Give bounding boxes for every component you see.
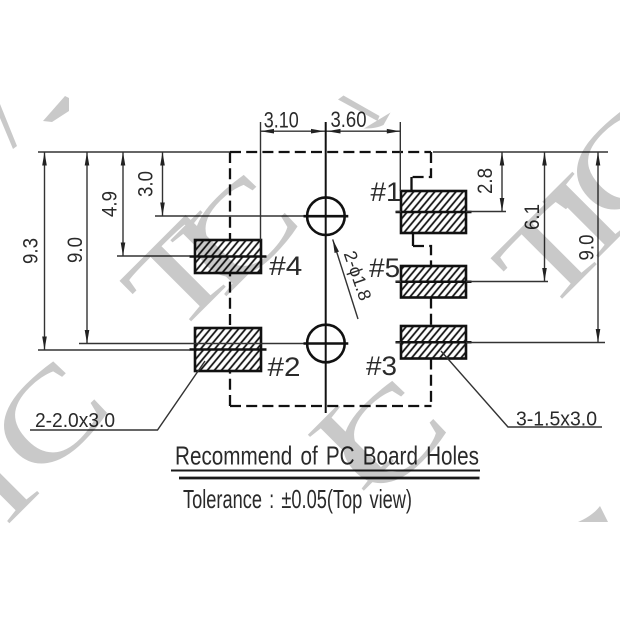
svg-text:9.3: 9.3 [20,238,43,264]
svg-text:3.0: 3.0 [135,171,158,197]
svg-text:9.0: 9.0 [64,237,87,263]
svg-text:#5: #5 [369,253,400,283]
svg-text:3.10: 3.10 [264,108,299,133]
svg-text:#1: #1 [371,177,402,207]
svg-text:3-1.5x3.0: 3-1.5x3.0 [516,409,597,431]
svg-text:4.9: 4.9 [99,191,122,217]
svg-text:#2: #2 [268,352,301,382]
svg-text:2.8: 2.8 [474,168,497,194]
